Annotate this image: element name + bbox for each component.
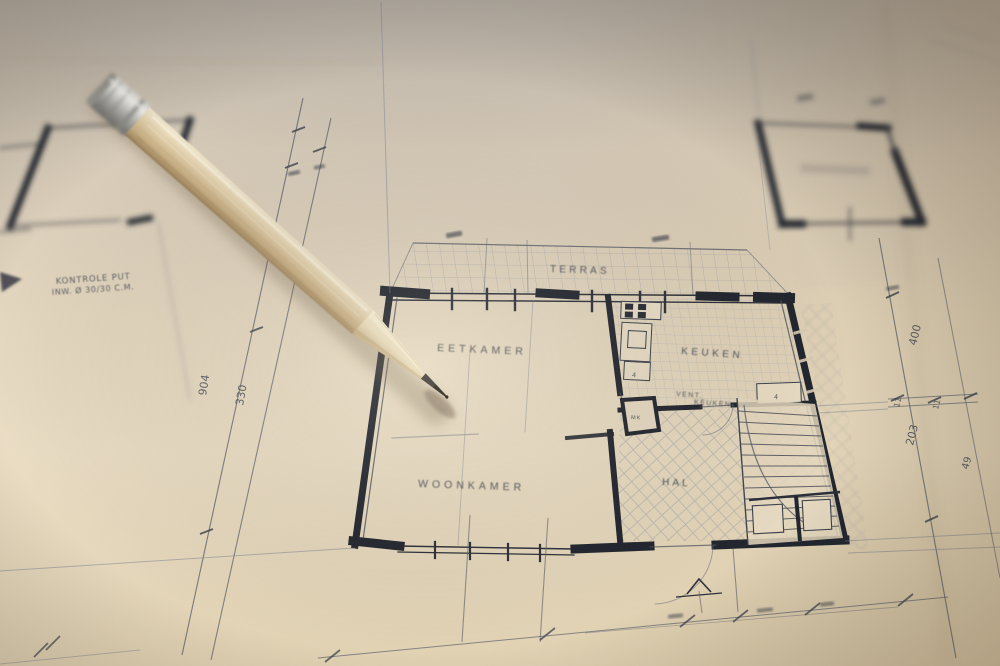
blueprint-photo: KONTROLE PUT INW. Ø 30/30 C.M. 904 330 T…: [0, 0, 1000, 666]
film-grain: [0, 0, 1000, 666]
blueprint-scene: KONTROLE PUT INW. Ø 30/30 C.M. 904 330 T…: [0, 0, 1000, 666]
